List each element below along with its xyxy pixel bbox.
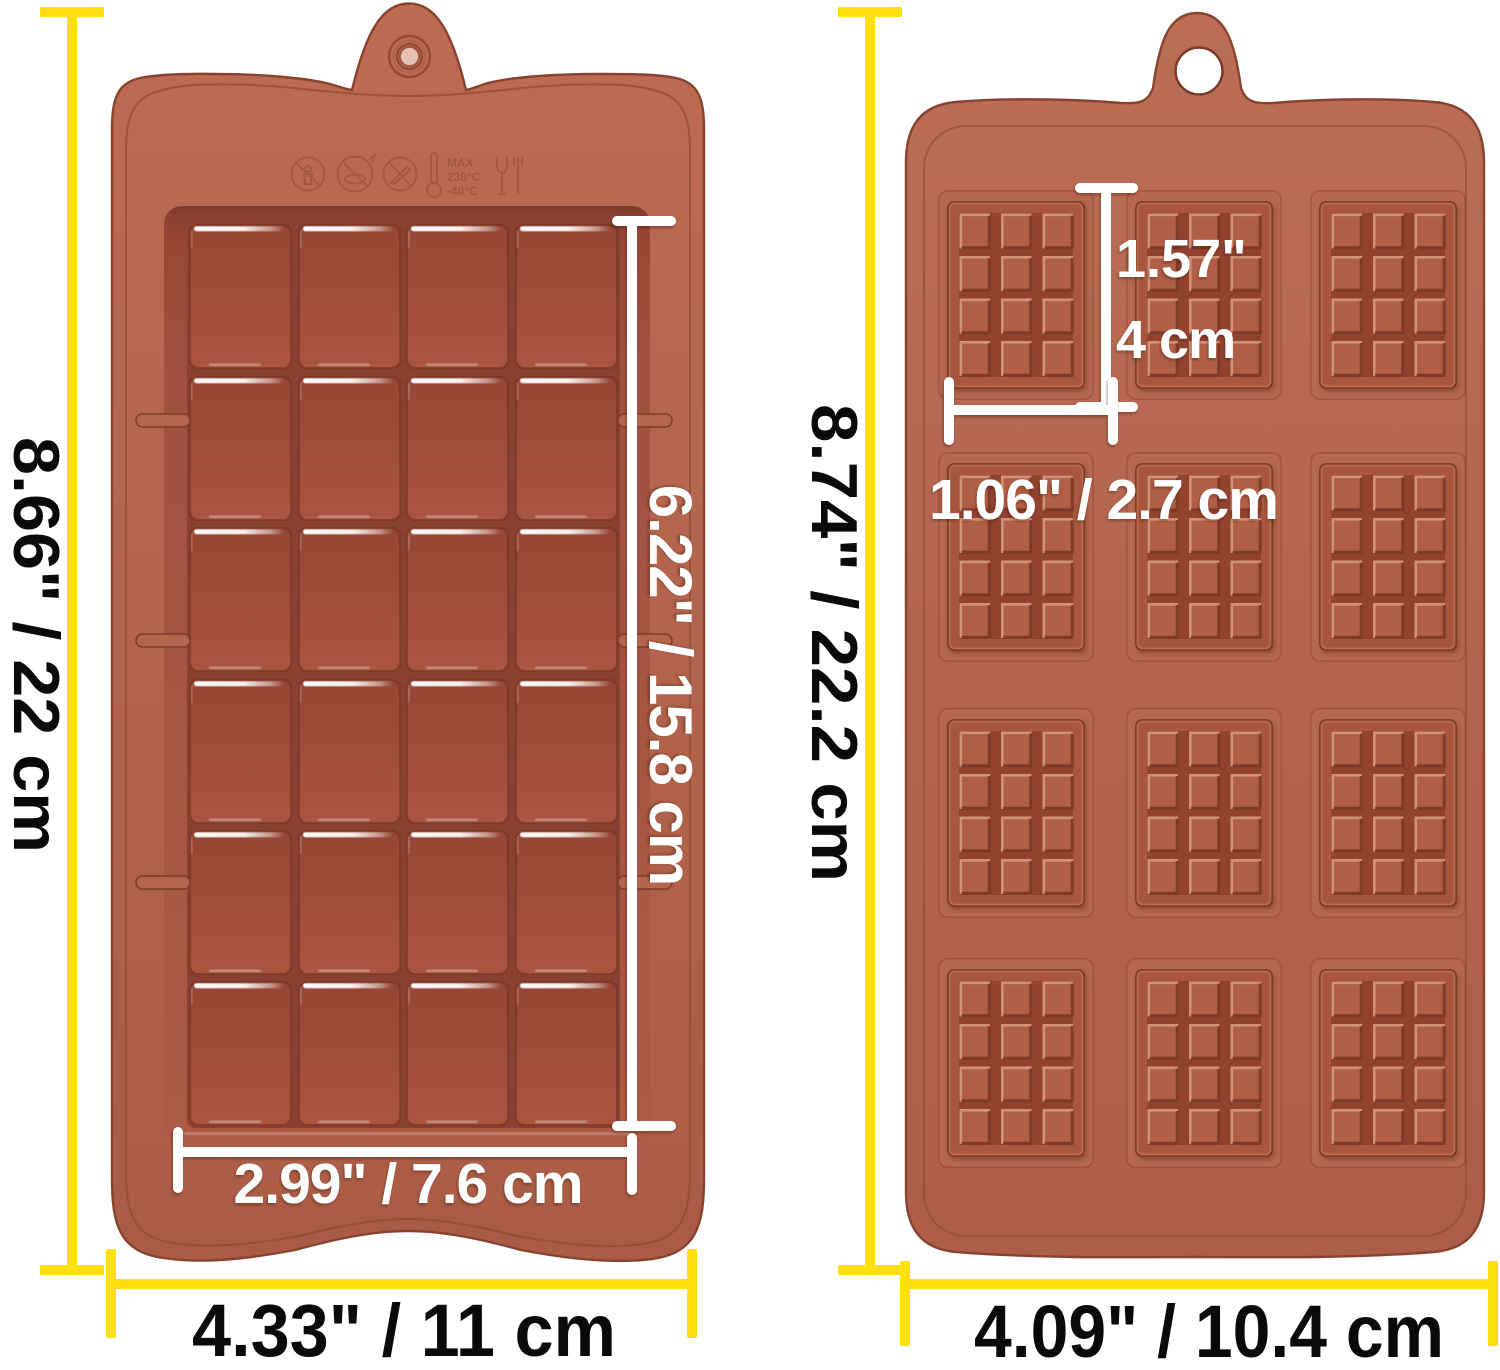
svg-text:4 cm: 4 cm (1116, 310, 1235, 370)
svg-text:2.99" / 7.6 cm: 2.99" / 7.6 cm (234, 1152, 583, 1216)
svg-text:1.06" / 2.7 cm: 1.06" / 2.7 cm (929, 468, 1278, 532)
svg-text:8.66" / 22 cm: 8.66" / 22 cm (0, 437, 73, 853)
svg-text:-40°C: -40°C (447, 184, 478, 198)
svg-text:1.57": 1.57" (1116, 229, 1247, 289)
svg-text:8.74" / 22.2 cm: 8.74" / 22.2 cm (798, 404, 871, 882)
svg-text:6.22" / 15.8 cm: 6.22" / 15.8 cm (637, 485, 704, 885)
svg-text:4.33" / 11 cm: 4.33" / 11 cm (192, 1289, 616, 1370)
svg-text:230°C: 230°C (447, 170, 481, 184)
svg-text:MAX: MAX (447, 156, 474, 170)
svg-text:4.09" / 10.4 cm: 4.09" / 10.4 cm (974, 1290, 1444, 1370)
